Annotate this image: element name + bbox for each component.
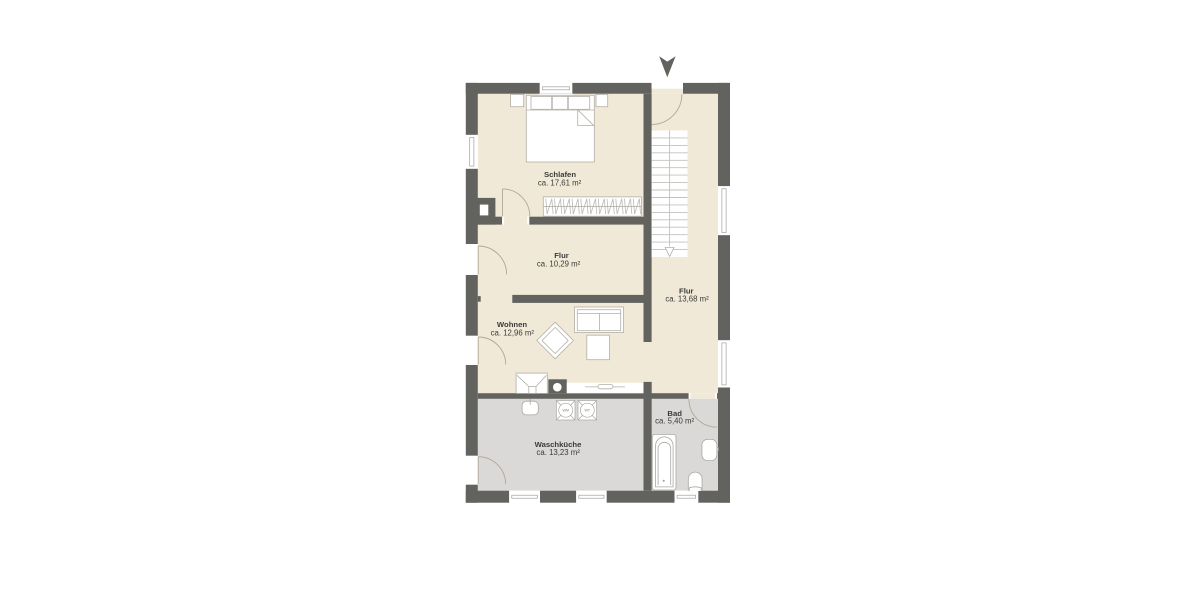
svg-text:ca. 12,96 m²: ca. 12,96 m² [491,329,535,338]
svg-text:ca. 17,61 m²: ca. 17,61 m² [538,178,582,187]
svg-text:WT: WT [585,409,591,413]
svg-text:ca. 13,68 m²: ca. 13,68 m² [665,295,709,304]
svg-text:ca. 5,40 m²: ca. 5,40 m² [655,417,694,426]
svg-text:ca. 10,29 m²: ca. 10,29 m² [537,260,581,269]
svg-text:ca. 13,23 m²: ca. 13,23 m² [537,448,581,457]
svg-text:WM: WM [563,409,569,413]
